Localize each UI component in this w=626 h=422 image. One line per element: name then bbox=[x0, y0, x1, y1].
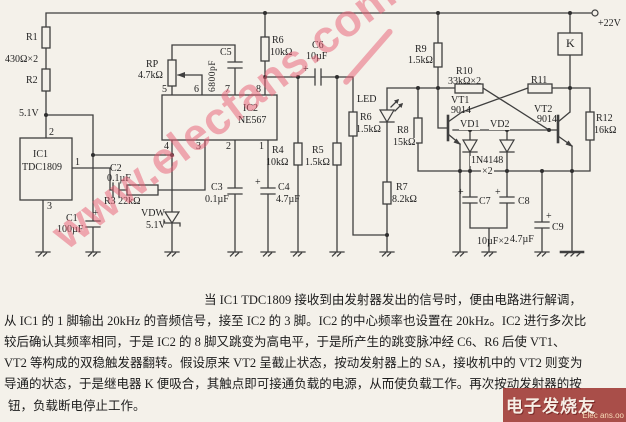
label-c8: C8 bbox=[518, 197, 530, 207]
label-r8: R8 bbox=[396, 126, 410, 136]
label-ic1: IC1 bbox=[33, 150, 48, 160]
label-c5-value: 6800pF bbox=[209, 52, 218, 92]
description-line: 当 IC1 TDC1809 接收到由发射器发出的信号时，便由电路进行解调， bbox=[204, 293, 582, 308]
label-led: LED bbox=[357, 95, 376, 105]
label-ic1-part: TDC1809 bbox=[22, 163, 62, 173]
label-c2-value: 0.1µF bbox=[107, 174, 131, 184]
label-r7-value: 8.2kΩ bbox=[392, 195, 417, 205]
label-ic2-pin6: 6 bbox=[194, 85, 199, 95]
label-vd2: VD2 bbox=[489, 120, 510, 130]
rp-wiper-arrow bbox=[177, 72, 185, 78]
label-c1-plus: + bbox=[93, 209, 99, 219]
label-r3: R3 22kΩ bbox=[104, 197, 141, 207]
description-line: 从 IC1 的 1 脚输出 20kHz 的音频信号，接至 IC2 的 3 脚。I… bbox=[4, 314, 586, 329]
label-r1: R1 bbox=[26, 33, 38, 43]
label-vdw: VDW bbox=[141, 209, 165, 219]
label-ic2-part: NE567 bbox=[238, 116, 266, 126]
label-c6-plus: + bbox=[303, 65, 309, 75]
pot-rp bbox=[168, 60, 176, 86]
label-r1-value: 430Ω×2 bbox=[5, 55, 38, 65]
resistor-r12 bbox=[586, 112, 594, 140]
label-vt2-part: 9014 bbox=[537, 115, 557, 125]
description-line: 较后确认其频率相同，于是 IC2 的 8 脚又跳变为高电平，于是所产生的跳变脉冲… bbox=[4, 335, 565, 350]
resistor-r6a bbox=[261, 37, 269, 61]
label-c7: C7 bbox=[479, 197, 491, 207]
resistor-r2 bbox=[42, 69, 50, 91]
label-c9-value: 4.7µF bbox=[510, 235, 534, 245]
label-ic1-pin2: 2 bbox=[49, 128, 54, 138]
label-c3: C3 bbox=[211, 183, 223, 193]
label-ic2-pin7: 7 bbox=[225, 85, 230, 95]
label-r7: R7 bbox=[396, 183, 408, 193]
label-ic2-pin2: 2 bbox=[226, 142, 231, 152]
scanned-schematic-page: R1 430Ω×2 R2 5.1V IC1 TDC1809 2 1 3 C1 1… bbox=[0, 0, 626, 422]
label-c1-value: 100µF bbox=[57, 225, 83, 235]
label-ic2-pin4: 4 bbox=[164, 142, 169, 152]
label-rp-value: 4.7kΩ bbox=[138, 71, 163, 81]
label-c1: C1 bbox=[66, 214, 78, 224]
label-ic2-pin3: 3 bbox=[196, 142, 201, 152]
label-c9: C9 bbox=[552, 223, 564, 233]
label-vt1-part: 9014 bbox=[451, 106, 471, 116]
led-symbol bbox=[380, 110, 394, 122]
label-rp: RP bbox=[146, 60, 158, 70]
label-ic1-pin1: 1 bbox=[75, 158, 80, 168]
resistor-r9 bbox=[434, 43, 442, 67]
description-line: 钮，负载断电停止工作。 bbox=[8, 399, 146, 414]
label-c4: C4 bbox=[278, 183, 290, 193]
label-c3-value: 0.1µF bbox=[205, 195, 229, 205]
zener-vdw-symbol bbox=[165, 212, 179, 223]
resistor-r5 bbox=[333, 143, 341, 165]
description-line: 导通的状态，于是继电器 K 便吸合，其触点即可接通负载的电源，从而使负载工作。再… bbox=[4, 377, 582, 392]
label-supply-22v: +22V bbox=[598, 19, 621, 29]
label-ic2-pin1: 1 bbox=[259, 142, 264, 152]
watermark-badge-subtitle: Elec ans.oo bbox=[582, 411, 624, 420]
label-r10-value: 33kΩ×2 bbox=[448, 77, 481, 87]
supply-terminal bbox=[592, 10, 598, 16]
resistor-r1 bbox=[42, 27, 50, 48]
label-r4-value: 10kΩ bbox=[266, 158, 288, 168]
label-c4-plus: + bbox=[255, 178, 261, 188]
label-c5: C5 bbox=[220, 48, 232, 58]
label-r2: R2 bbox=[26, 76, 38, 86]
label-vd-part: 1N4148 bbox=[470, 156, 504, 166]
label-c9-plus: + bbox=[546, 212, 552, 222]
label-c6: C6 bbox=[312, 41, 324, 51]
label-ic2-pin5: 5 bbox=[162, 85, 167, 95]
label-r6a-value: 10kΩ bbox=[270, 48, 292, 58]
label-r9: R9 bbox=[415, 45, 427, 55]
resistor-r7 bbox=[383, 182, 391, 204]
diode-vd1-symbol bbox=[463, 140, 477, 152]
resistor-r4 bbox=[294, 143, 302, 165]
label-r6b: R6 bbox=[360, 113, 372, 123]
label-ic2-pin8: 8 bbox=[256, 85, 261, 95]
label-r5: R5 bbox=[312, 146, 324, 156]
label-r12-value: 16kΩ bbox=[594, 126, 616, 136]
ground-symbols bbox=[36, 252, 583, 256]
label-r5-value: 1.5kΩ bbox=[305, 158, 330, 168]
description-line: VT2 等构成的双稳触发器翻转。假设原来 VT2 呈截止状态，按动发射器上的 S… bbox=[4, 356, 582, 371]
label-c7-plus: + bbox=[458, 188, 464, 198]
circuit-diagram: R1 430Ω×2 R2 5.1V IC1 TDC1809 2 1 3 C1 1… bbox=[0, 0, 626, 290]
label-5v1-node: 5.1V bbox=[19, 109, 39, 119]
label-r6b-value: 1.5kΩ bbox=[356, 125, 381, 135]
label-ic2: IC2 bbox=[243, 104, 258, 114]
label-r9-value: 1.5kΩ bbox=[408, 56, 433, 66]
label-r6a: R6 bbox=[272, 36, 284, 46]
label-vd1: VD1 bbox=[459, 120, 480, 130]
label-r8-value: 15kΩ bbox=[392, 138, 416, 148]
label-r4: R4 bbox=[272, 146, 284, 156]
label-vdw-value: 5.1V bbox=[146, 221, 166, 231]
label-vd-qty: ×2 bbox=[481, 167, 494, 177]
label-ic1-pin3: 3 bbox=[47, 202, 52, 212]
watermark-badge: 电子发烧友 Elec ans.oo bbox=[503, 388, 626, 422]
label-c7c8-value: 10µF×2 bbox=[477, 237, 509, 247]
label-relay-k: K bbox=[566, 38, 575, 48]
label-c4-value: 4.7µF bbox=[276, 195, 300, 205]
label-r11: R11 bbox=[531, 76, 547, 86]
resistor-r3 bbox=[127, 185, 158, 195]
diode-vd2-symbol bbox=[500, 140, 514, 152]
label-c8-plus: + bbox=[495, 188, 501, 198]
label-c6-value: 10µF bbox=[306, 52, 327, 62]
label-r12: R12 bbox=[596, 114, 613, 124]
